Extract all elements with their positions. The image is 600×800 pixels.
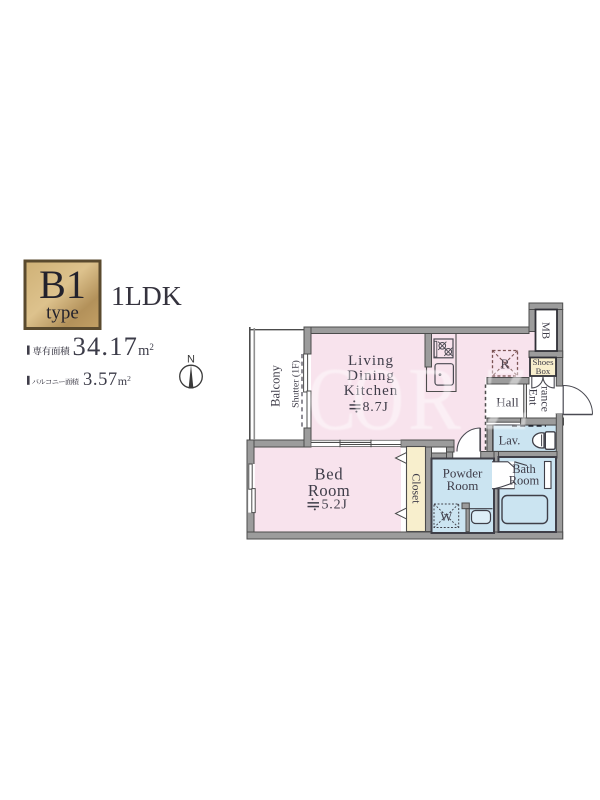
svg-text:O: O (352, 348, 404, 448)
svg-text:B1: B1 (39, 262, 86, 307)
svg-text:R: R (408, 349, 461, 449)
svg-text:N: N (187, 354, 195, 366)
svg-text:W: W (440, 510, 452, 524)
svg-text:1LDK: 1LDK (111, 280, 182, 311)
svg-text:MB: MB (540, 322, 552, 339)
svg-text:Balcony: Balcony (269, 364, 283, 406)
svg-text:type: type (46, 303, 79, 324)
svg-text:C: C (308, 348, 356, 448)
svg-text:Closet: Closet (410, 473, 424, 504)
svg-text:5.2J: 5.2J (322, 498, 348, 513)
svg-text:Room: Room (509, 474, 540, 488)
svg-text:Shutter (1F): Shutter (1F) (291, 360, 302, 408)
svg-text:Box: Box (536, 366, 551, 376)
svg-text:rance: rance (539, 386, 553, 412)
svg-text:Z: Z (482, 349, 530, 449)
svg-text:Room: Room (447, 478, 479, 493)
